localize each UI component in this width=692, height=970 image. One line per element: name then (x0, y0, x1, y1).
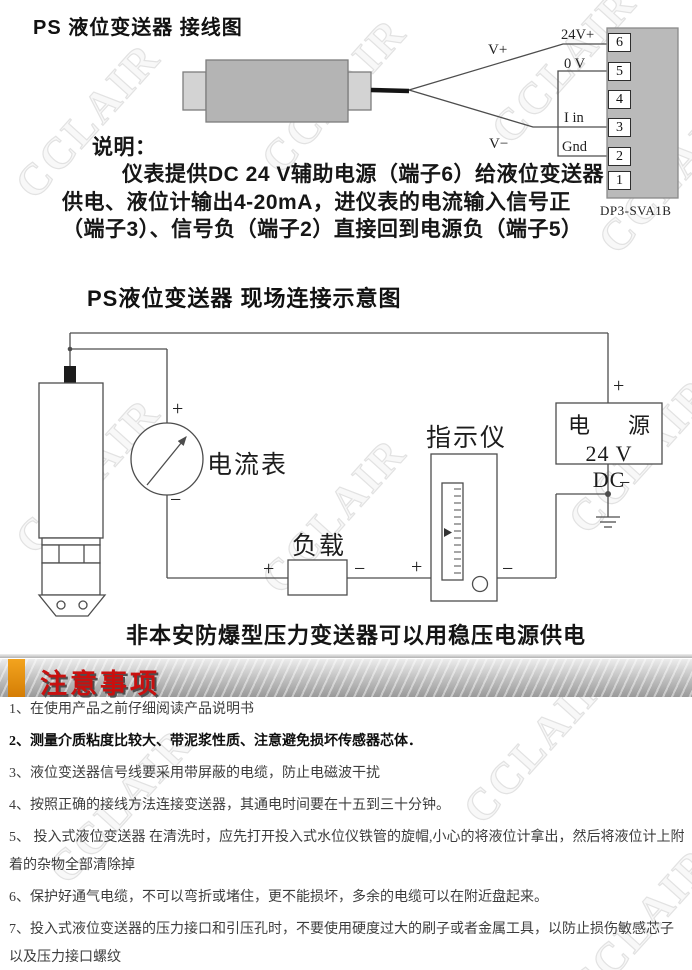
load-label: 负载 (292, 526, 346, 562)
terminal-label-iin: I in (564, 110, 584, 127)
power-name-right: 源 (628, 408, 650, 440)
explain-line: 供电、液位计输出4-20mA，进仪表的电流输入信号正 (62, 186, 571, 216)
explain-heading: 说明： (92, 131, 157, 161)
terminal-3: 3 (608, 118, 631, 137)
power-name-left: 电 (568, 408, 590, 440)
notice-banner: 注意事项 (0, 659, 692, 697)
product-instruction-page: CCLAIR CCLAIR CCLAIR CCLAIR CCLAIR CCLAI… (0, 0, 692, 970)
ammeter-minus-sign: − (170, 489, 181, 512)
notice-item: 1、在使用产品之前仔细阅读产品说明书 (9, 696, 685, 724)
power-minus-sign: − (619, 472, 630, 495)
wiring-diagram-title: PS 液位变送器 接线图 (33, 11, 243, 40)
power-plus-sign: + (613, 375, 624, 398)
banner-accent-bar (8, 659, 25, 697)
banner-top-strip (0, 654, 692, 658)
terminal-label-0v: 0 V (564, 56, 585, 73)
notice-item: 6、保护好通气电缆，不可以弯折或堵住，更不能损坏，多余的电缆可以在附近盘起来。 (9, 884, 685, 912)
terminal-1: 1 (608, 171, 631, 190)
notice-item: 3、液位变送器信号线要采用带屏蔽的电缆，防止电磁波干扰 (9, 760, 685, 788)
field-diagram-title: PS液位变送器 现场连接示意图 (87, 281, 401, 313)
notice-list: 1、在使用产品之前仔细阅读产品说明书 2、测量介质粘度比较大、带泥浆性质、注意避… (9, 696, 685, 970)
terminal-label-24v: 24V+ (561, 27, 594, 44)
terminal-4: 4 (608, 90, 631, 109)
load-plus-sign: + (263, 558, 274, 581)
indicator-label: 指示仪 (426, 418, 507, 454)
power-rating: 24 V DC (568, 441, 650, 493)
terminal-block-model: DP3-SVA1B (600, 203, 671, 219)
notice-item: 5、 投入式液位变送器 在清洗时，应先打开投入式水位仪铁管的旋帽,小心的将液位计… (9, 824, 685, 880)
load-minus-sign: − (354, 558, 365, 581)
wire-label-v-plus: V+ (488, 42, 507, 59)
watermark-text: CCLAIR (5, 387, 171, 563)
power-supply-box: 电 源 24 V DC (556, 403, 662, 464)
terminal-2: 2 (608, 147, 631, 166)
wire-label-v-minus: V− (489, 136, 508, 153)
indicator-plus-sign: + (411, 556, 422, 579)
notice-item: 4、按照正确的接线方法连接变送器，其通电时间要在十五到三十分钟。 (9, 792, 685, 820)
ammeter-label: 电流表 (207, 445, 288, 481)
notice-item: 7、投入式液位变送器的压力接口和引压孔时，不要使用硬度过大的刷子或者金属工具，以… (9, 916, 685, 970)
explain-line: （端子3）、信号负（端子2）直接回到电源负（端子5） (62, 213, 583, 243)
ammeter-plus-sign: + (172, 398, 183, 421)
indicator-minus-sign: − (502, 558, 513, 581)
terminal-6: 6 (608, 33, 631, 52)
explain-line: 仪表提供DC 24 V辅助电源（端子6）给液位变送器 (122, 158, 604, 188)
field-footnote: 非本安防爆型压力变送器可以用稳压电源供电 (20, 618, 692, 650)
terminal-label-gnd: Gnd (562, 139, 587, 156)
terminal-5: 5 (608, 62, 631, 81)
notice-item: 2、测量介质粘度比较大、带泥浆性质、注意避免损坏传感器芯体． (9, 728, 685, 756)
